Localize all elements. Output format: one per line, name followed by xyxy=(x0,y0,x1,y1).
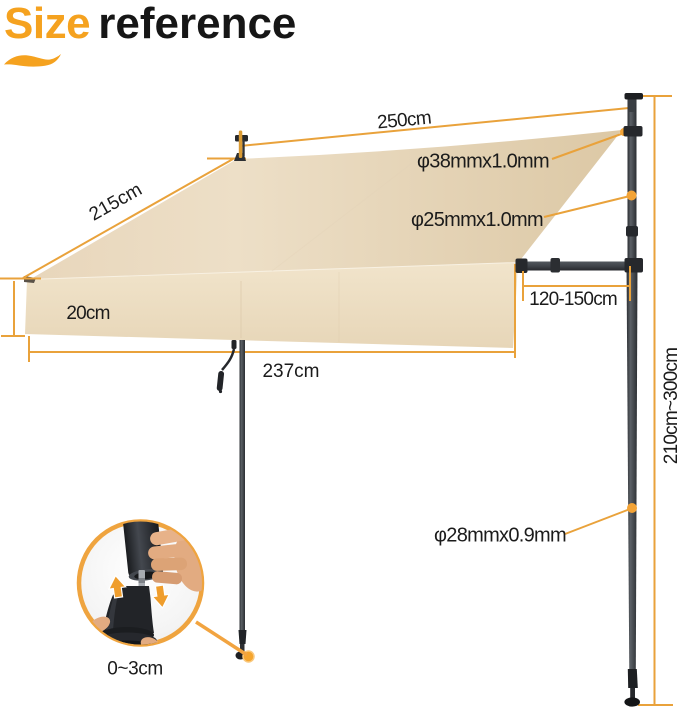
svg-text:φ25mmx1.0mm: φ25mmx1.0mm xyxy=(411,209,543,231)
svg-text:120-150cm: 120-150cm xyxy=(529,289,617,310)
svg-text:20cm: 20cm xyxy=(66,303,109,324)
svg-text:210cm~300cm: 210cm~300cm xyxy=(661,348,679,464)
svg-text:Size reference: Size reference xyxy=(4,0,296,48)
svg-text:0~3cm: 0~3cm xyxy=(107,659,163,680)
svg-text:φ38mmx1.0mm: φ38mmx1.0mm xyxy=(417,151,549,173)
svg-text:237cm: 237cm xyxy=(262,361,319,382)
svg-text:φ28mmx0.9mm: φ28mmx0.9mm xyxy=(434,525,566,547)
